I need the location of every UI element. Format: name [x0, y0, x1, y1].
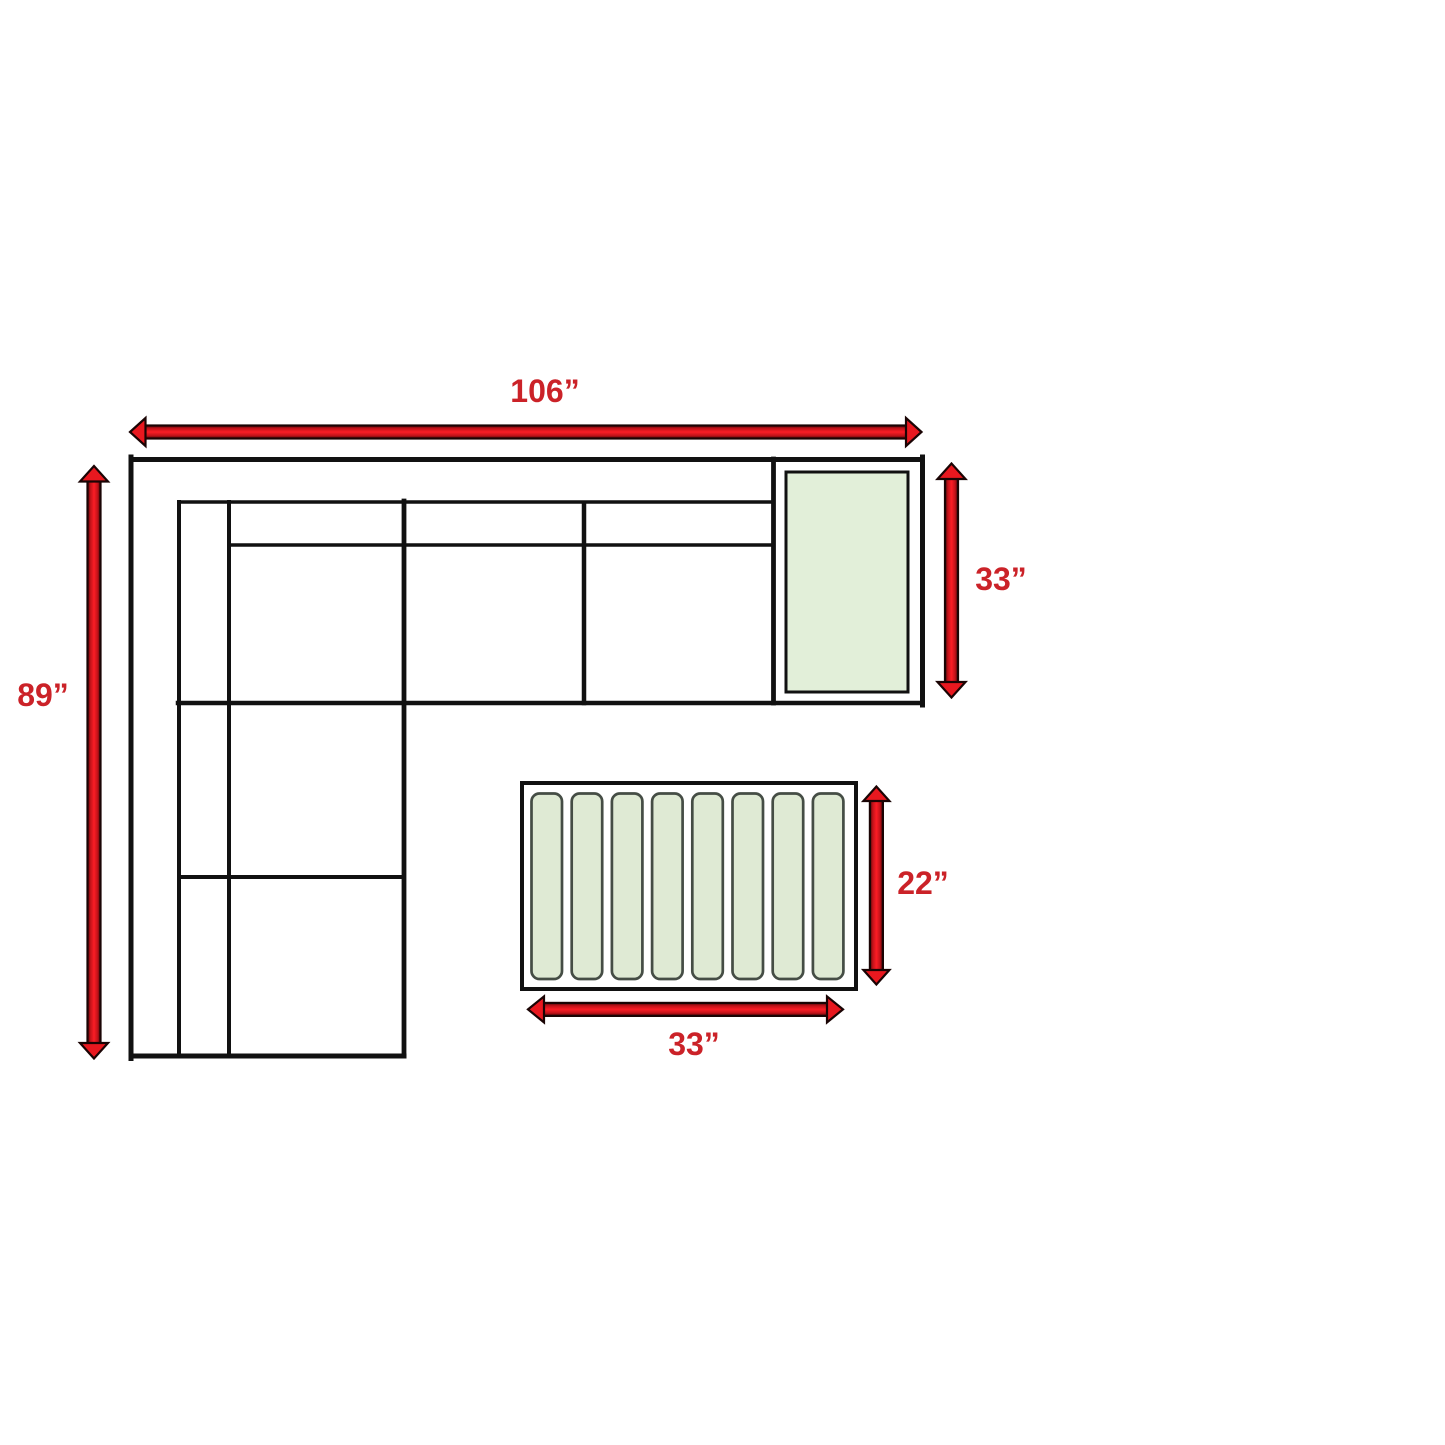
svg-text:89”: 89”: [17, 677, 69, 713]
svg-text:106”: 106”: [510, 373, 579, 409]
svg-text:33”: 33”: [668, 1026, 720, 1062]
svg-text:33”: 33”: [975, 561, 1027, 597]
svg-text:22”: 22”: [897, 865, 949, 901]
